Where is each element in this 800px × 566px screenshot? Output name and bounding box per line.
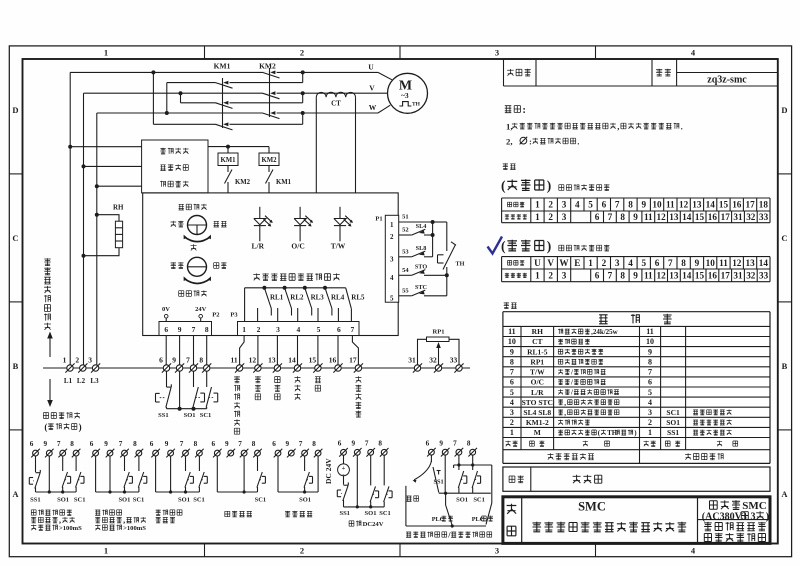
svg-text:16: 16: [708, 212, 718, 222]
svg-text:2: 2: [390, 233, 394, 241]
svg-text:L/R: L/R: [252, 242, 265, 251]
svg-text:6: 6: [272, 440, 276, 448]
svg-text:KM2: KM2: [235, 179, 251, 186]
svg-text:KM1: KM1: [214, 62, 231, 71]
svg-text:SO1: SO1: [365, 510, 377, 517]
svg-text:1: 1: [104, 546, 108, 556]
svg-text:U: U: [368, 63, 374, 72]
svg-text:55: 55: [402, 287, 409, 294]
svg-text:L1: L1: [64, 377, 73, 385]
svg-text:SO1: SO1: [299, 497, 311, 504]
svg-text:15: 15: [695, 271, 705, 281]
svg-text:W: W: [559, 258, 569, 268]
svg-text:17: 17: [746, 200, 756, 210]
svg-text:8: 8: [620, 271, 625, 281]
svg-text:SS1: SS1: [30, 497, 40, 504]
svg-text:,: ,: [123, 516, 125, 525]
svg-text:52: 52: [402, 227, 409, 234]
svg-text:SS1: SS1: [434, 479, 444, 486]
svg-text:8: 8: [70, 440, 74, 448]
svg-text:STO: STO: [415, 263, 427, 270]
svg-text:3: 3: [615, 258, 620, 268]
svg-text:9: 9: [633, 212, 638, 222]
svg-text:9: 9: [695, 258, 700, 268]
svg-text:9: 9: [439, 439, 443, 447]
svg-text:10: 10: [652, 200, 662, 210]
svg-text:,: ,: [617, 121, 619, 131]
svg-text:24V: 24V: [195, 306, 207, 313]
svg-text:13: 13: [692, 200, 702, 210]
svg-text:5: 5: [390, 295, 394, 303]
svg-text:RP1: RP1: [530, 357, 544, 366]
svg-text:TH: TH: [412, 102, 421, 108]
svg-text:51: 51: [402, 214, 409, 221]
svg-text:6: 6: [595, 212, 600, 222]
svg-text:32: 32: [429, 356, 437, 365]
svg-text:V: V: [369, 83, 375, 92]
svg-text:2: 2: [257, 325, 261, 334]
svg-text:A: A: [781, 489, 788, 499]
svg-text:6: 6: [655, 258, 660, 268]
svg-text:1: 1: [648, 428, 652, 437]
svg-text:KM1: KM1: [276, 179, 292, 186]
svg-text:M: M: [534, 428, 541, 437]
svg-text:SO1: SO1: [666, 418, 680, 427]
svg-text:8: 8: [378, 439, 382, 447]
svg-text:TH: TH: [456, 261, 465, 268]
svg-text:~3: ~3: [401, 91, 409, 100]
svg-text:12: 12: [249, 356, 257, 365]
svg-text:13: 13: [669, 212, 679, 222]
svg-text:3: 3: [562, 200, 567, 210]
svg-text:6: 6: [510, 378, 514, 387]
svg-text:1: 1: [63, 356, 67, 365]
svg-text:31: 31: [733, 212, 743, 222]
svg-text:9: 9: [172, 356, 176, 365]
svg-text:13: 13: [746, 258, 756, 268]
svg-text:SS1: SS1: [158, 412, 168, 419]
svg-text:11: 11: [644, 212, 653, 222]
svg-text:1: 1: [104, 48, 108, 58]
svg-text:3: 3: [276, 325, 280, 334]
svg-text:RL3: RL3: [311, 294, 325, 302]
svg-text:RL4: RL4: [331, 294, 345, 302]
svg-text:RP1: RP1: [433, 329, 445, 336]
svg-text:D: D: [12, 105, 18, 115]
svg-text:A: A: [12, 489, 19, 499]
svg-text::: :: [529, 136, 532, 146]
svg-text:2: 2: [602, 258, 607, 268]
svg-text:8: 8: [312, 440, 316, 448]
svg-text:8: 8: [199, 356, 203, 365]
svg-text:B: B: [13, 361, 19, 371]
svg-text:7: 7: [186, 356, 190, 365]
svg-text:.: .: [577, 136, 579, 146]
svg-text:1: 1: [588, 258, 593, 268]
svg-text:SC1: SC1: [379, 510, 391, 517]
svg-text:6: 6: [595, 271, 600, 281]
svg-text:3: 3: [648, 408, 652, 417]
svg-text:14: 14: [288, 356, 296, 365]
svg-text:53: 53: [402, 248, 409, 255]
svg-text:15: 15: [695, 212, 705, 222]
svg-text:(: (: [501, 239, 506, 254]
svg-text:5: 5: [588, 200, 593, 210]
svg-text:CT: CT: [331, 100, 341, 108]
svg-text:SO1: SO1: [456, 497, 468, 504]
svg-text:1: 1: [535, 200, 540, 210]
svg-text:17: 17: [721, 212, 731, 222]
svg-text:4: 4: [297, 325, 301, 334]
svg-text:7: 7: [57, 440, 61, 448]
svg-text:4: 4: [390, 274, 394, 282]
svg-text:14: 14: [682, 212, 692, 222]
svg-text:3: 3: [751, 511, 756, 522]
svg-text:,: ,: [564, 409, 566, 417]
svg-text:9: 9: [633, 271, 638, 281]
svg-text:P3: P3: [230, 312, 238, 319]
svg-text:P2: P2: [212, 312, 219, 319]
svg-text:31: 31: [733, 271, 743, 281]
svg-text:L2: L2: [77, 377, 86, 385]
svg-text:P1: P1: [375, 216, 382, 223]
svg-text:9: 9: [648, 347, 652, 356]
svg-text:4: 4: [510, 398, 514, 407]
svg-text:): ): [547, 178, 552, 193]
svg-text:1: 1: [510, 428, 514, 437]
svg-text:(: (: [501, 178, 506, 193]
svg-text:7: 7: [119, 440, 123, 448]
svg-text:5: 5: [642, 258, 647, 268]
svg-text:2: 2: [548, 271, 553, 281]
svg-text:6: 6: [602, 200, 607, 210]
svg-text:13: 13: [268, 356, 276, 365]
svg-text:8: 8: [681, 258, 686, 268]
svg-text:33: 33: [450, 356, 458, 365]
svg-text:9: 9: [104, 440, 108, 448]
svg-text:zq3z-smc: zq3z-smc: [707, 75, 747, 86]
svg-text:3: 3: [562, 271, 567, 281]
svg-text:12: 12: [679, 200, 689, 210]
svg-text:8: 8: [467, 439, 471, 447]
svg-text:T/W: T/W: [530, 368, 545, 377]
svg-text:1: 1: [390, 221, 394, 229]
svg-text:14: 14: [682, 271, 692, 281]
svg-text:14: 14: [706, 200, 716, 210]
svg-text:9: 9: [225, 440, 229, 448]
svg-text:V: V: [547, 258, 554, 268]
svg-text:10: 10: [706, 258, 716, 268]
svg-text:9: 9: [642, 200, 647, 210]
svg-text:3: 3: [390, 256, 394, 264]
svg-text:9: 9: [510, 347, 514, 356]
svg-text:15: 15: [719, 200, 729, 210]
svg-text:T/W: T/W: [331, 242, 346, 251]
svg-text:KM2: KM2: [259, 62, 276, 71]
svg-text:9: 9: [178, 325, 182, 334]
svg-text:1,: 1,: [506, 121, 513, 131]
svg-text:SC1: SC1: [133, 497, 145, 504]
svg-text:SO1: SO1: [184, 412, 196, 419]
svg-text:(AC380V3: (AC380V3: [702, 511, 747, 522]
svg-text:8: 8: [628, 200, 633, 210]
svg-text:RL2: RL2: [290, 294, 304, 302]
svg-text:33: 33: [759, 271, 769, 281]
svg-text:6: 6: [90, 440, 94, 448]
svg-text:RL5: RL5: [351, 294, 365, 302]
svg-text:17: 17: [721, 271, 731, 281]
svg-text:10: 10: [646, 337, 654, 346]
svg-text:PLC: PLC: [472, 516, 484, 523]
svg-text:3: 3: [495, 48, 499, 58]
svg-text:SC1: SC1: [193, 497, 205, 504]
svg-text::: :: [522, 105, 526, 116]
svg-text:16: 16: [732, 200, 742, 210]
svg-text:SL4 SL8: SL4 SL8: [523, 408, 551, 417]
svg-text:7: 7: [668, 258, 673, 268]
svg-text:7: 7: [192, 325, 196, 334]
svg-text:STO STC: STO STC: [522, 398, 553, 407]
svg-text:10: 10: [508, 337, 516, 346]
svg-text:7: 7: [365, 439, 369, 447]
svg-text:3: 3: [88, 356, 92, 365]
svg-text:2: 2: [548, 200, 553, 210]
svg-text:6: 6: [150, 440, 154, 448]
svg-text:3: 3: [495, 546, 499, 556]
svg-text:RL1-5: RL1-5: [527, 347, 548, 356]
svg-text:5: 5: [317, 325, 321, 334]
svg-text:SC1: SC1: [666, 408, 680, 417]
svg-text:3: 3: [562, 212, 567, 222]
svg-text:16: 16: [329, 356, 337, 365]
svg-text:8: 8: [194, 440, 198, 448]
svg-text:7: 7: [510, 368, 514, 377]
svg-text:SC1: SC1: [255, 497, 267, 504]
svg-text:L3: L3: [90, 377, 99, 385]
svg-text:9: 9: [286, 440, 290, 448]
svg-text:11: 11: [666, 200, 675, 210]
svg-text:SL8: SL8: [416, 245, 427, 252]
svg-text:15: 15: [309, 356, 317, 365]
svg-text:8: 8: [205, 325, 209, 334]
svg-text:8: 8: [252, 440, 256, 448]
svg-text:SO1: SO1: [57, 497, 69, 504]
svg-text:4: 4: [648, 398, 652, 407]
svg-text:1: 1: [242, 325, 246, 334]
svg-text:7: 7: [453, 439, 457, 447]
svg-text:KM1: KM1: [220, 157, 236, 164]
svg-text:O/C: O/C: [531, 378, 544, 387]
svg-text:): ): [79, 422, 82, 432]
svg-text:,24k/25w: ,24k/25w: [591, 328, 619, 336]
svg-text:SO1: SO1: [178, 497, 190, 504]
svg-text:7: 7: [180, 440, 184, 448]
svg-text:CT: CT: [532, 337, 542, 346]
svg-text:1: 1: [535, 271, 540, 281]
svg-text:C: C: [12, 233, 18, 243]
svg-text:18: 18: [759, 200, 769, 210]
svg-text:7: 7: [238, 440, 242, 448]
svg-text:6: 6: [159, 356, 163, 365]
svg-text:SS1: SS1: [667, 428, 679, 437]
svg-text:): ): [766, 511, 769, 522]
svg-text:32: 32: [746, 271, 756, 281]
svg-text:0V: 0V: [162, 306, 170, 313]
svg-text:9: 9: [44, 440, 48, 448]
svg-text:2,: 2,: [506, 136, 513, 146]
svg-text:6: 6: [30, 440, 34, 448]
svg-text:SC1: SC1: [200, 412, 212, 419]
svg-text:54: 54: [402, 267, 409, 274]
svg-text:31: 31: [408, 356, 416, 365]
svg-text:2: 2: [548, 212, 553, 222]
svg-text:8: 8: [648, 357, 652, 366]
svg-text:L/R: L/R: [531, 388, 544, 397]
svg-text:DC24V: DC24V: [363, 521, 384, 528]
svg-text:12: 12: [657, 212, 667, 222]
svg-text:4: 4: [575, 200, 580, 210]
svg-text:7: 7: [351, 325, 355, 334]
svg-text:W: W: [369, 103, 377, 112]
svg-text:7: 7: [615, 200, 620, 210]
svg-text:,: ,: [59, 516, 61, 525]
svg-text:>100mS: >100mS: [59, 525, 82, 532]
svg-text:9: 9: [352, 439, 356, 447]
svg-text:2: 2: [75, 356, 79, 365]
svg-text:32: 32: [746, 212, 756, 222]
svg-text:8: 8: [510, 357, 514, 366]
svg-text:(: (: [44, 422, 47, 432]
svg-text:2: 2: [300, 48, 304, 58]
svg-text:11: 11: [644, 271, 653, 281]
svg-text:6: 6: [426, 439, 430, 447]
svg-text:RH: RH: [532, 327, 543, 336]
svg-text:B: B: [782, 361, 788, 371]
svg-text:7: 7: [648, 368, 652, 377]
svg-text:5: 5: [648, 388, 652, 397]
svg-text:7: 7: [299, 440, 303, 448]
svg-text:): ): [547, 239, 552, 254]
svg-text:E: E: [574, 258, 580, 268]
svg-text:C: C: [781, 233, 787, 243]
svg-text:KM2: KM2: [261, 157, 277, 164]
svg-text:16: 16: [708, 271, 718, 281]
svg-text:.: .: [681, 121, 683, 131]
svg-text:14: 14: [759, 258, 769, 268]
svg-text:7: 7: [608, 212, 613, 222]
svg-text:6: 6: [648, 378, 652, 387]
svg-text:O/C: O/C: [291, 242, 304, 251]
svg-text:2: 2: [300, 546, 304, 556]
svg-text:13: 13: [669, 271, 679, 281]
svg-text:5: 5: [510, 388, 514, 397]
svg-text:6: 6: [164, 325, 168, 334]
svg-text:RH: RH: [113, 204, 124, 212]
svg-text:KM1-2: KM1-2: [526, 418, 549, 427]
svg-text:SL4: SL4: [416, 223, 427, 230]
svg-text:>100mS: >100mS: [123, 525, 146, 532]
svg-text:6: 6: [337, 325, 341, 334]
svg-text:1: 1: [535, 212, 540, 222]
svg-text:33: 33: [759, 212, 769, 222]
svg-text:,: ,: [564, 399, 566, 407]
svg-text:RL1: RL1: [270, 294, 284, 302]
svg-text:SC1: SC1: [473, 497, 485, 504]
svg-text:9: 9: [165, 440, 169, 448]
svg-text:11: 11: [231, 356, 238, 365]
svg-text:6: 6: [338, 439, 342, 447]
svg-text:DC 24V: DC 24V: [324, 458, 333, 484]
svg-text:8: 8: [620, 212, 625, 222]
svg-text:SMC: SMC: [578, 500, 606, 514]
svg-text:12: 12: [657, 271, 667, 281]
svg-text:11: 11: [646, 327, 654, 336]
svg-text:SC1: SC1: [74, 497, 86, 504]
svg-text:11: 11: [508, 327, 516, 336]
svg-text:2: 2: [648, 418, 652, 427]
svg-text:4: 4: [628, 258, 633, 268]
svg-text:SS1: SS1: [339, 510, 349, 517]
svg-text:2: 2: [510, 418, 514, 427]
svg-text:12: 12: [732, 258, 742, 268]
svg-text:8: 8: [133, 440, 137, 448]
svg-text:SO1: SO1: [118, 497, 130, 504]
svg-text:17: 17: [349, 356, 357, 365]
svg-text:D: D: [781, 105, 787, 115]
svg-text:3: 3: [510, 408, 514, 417]
svg-text:11: 11: [719, 258, 728, 268]
svg-text:6: 6: [212, 440, 216, 448]
svg-text:U: U: [534, 258, 541, 268]
svg-text:STC: STC: [415, 284, 427, 291]
svg-text:7: 7: [608, 271, 613, 281]
